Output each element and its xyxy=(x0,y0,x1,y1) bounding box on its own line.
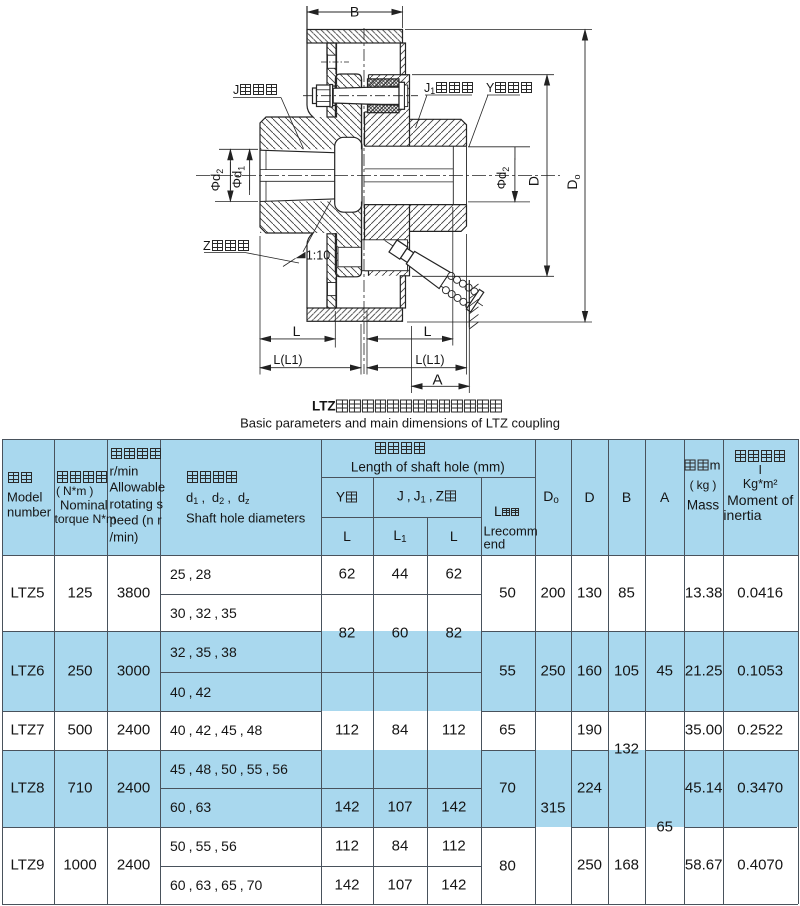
svg-text:1:10: 1:10 xyxy=(306,249,330,263)
svg-text:Φd1: Φd1 xyxy=(230,166,247,189)
svg-text:Φd2: Φd2 xyxy=(494,167,511,190)
svg-text:Φd2: Φd2 xyxy=(208,169,225,192)
svg-text:B: B xyxy=(350,4,359,20)
svg-text:A: A xyxy=(432,372,442,389)
svg-text:L: L xyxy=(424,323,432,339)
svg-text:L(L1): L(L1) xyxy=(415,353,444,367)
svg-text:D: D xyxy=(526,176,542,186)
svg-text:L(L1): L(L1) xyxy=(273,353,302,367)
svg-text:Do: Do xyxy=(564,174,582,189)
svg-text:L: L xyxy=(293,323,301,339)
